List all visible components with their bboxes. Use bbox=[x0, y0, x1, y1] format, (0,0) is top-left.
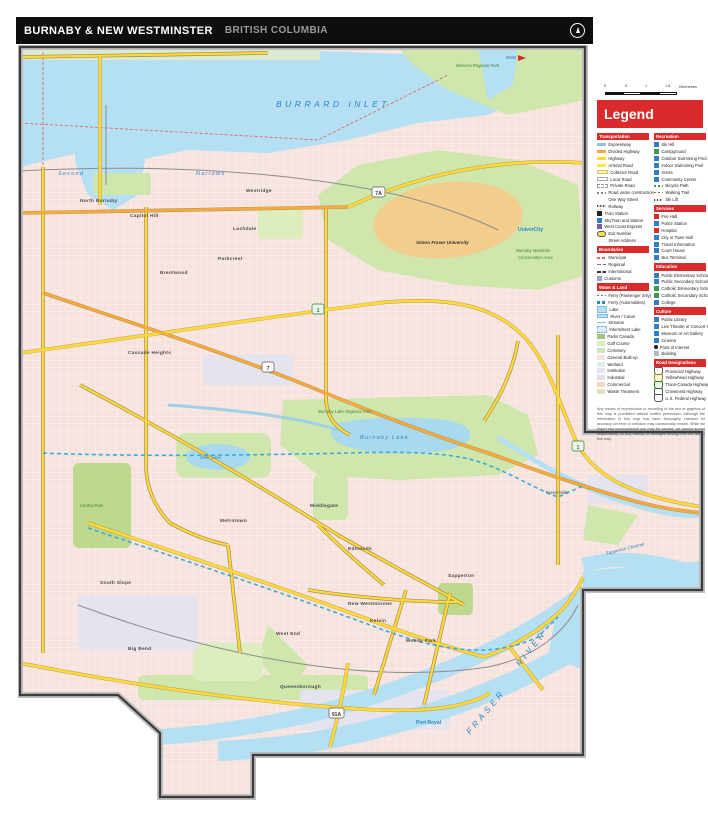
road-under-construction-swatch bbox=[597, 192, 606, 194]
legend-item: Live Theatre or Concert Hall bbox=[654, 323, 706, 330]
water-label: BURRARD INLET bbox=[276, 99, 390, 109]
park-label: Conservation Area bbox=[518, 255, 553, 260]
bicycle-path-swatch bbox=[654, 185, 663, 187]
district-label: North Burnaby bbox=[80, 198, 118, 204]
poi-label: UniverCity bbox=[518, 227, 543, 233]
park-label: Central Park bbox=[80, 503, 104, 508]
expressway-swatch bbox=[597, 143, 606, 146]
page-title: BURNABY & NEW WESTMINSTER bbox=[24, 25, 213, 37]
legend-section-header: Recreation bbox=[654, 133, 706, 141]
legend-item: Private Road bbox=[597, 182, 649, 189]
one-way-arrow-icon bbox=[597, 197, 606, 202]
legend-section-header: Education bbox=[654, 263, 706, 271]
museum-icon bbox=[654, 331, 659, 336]
waste-treatment-swatch bbox=[597, 389, 605, 394]
legend-item: Community Centre bbox=[654, 176, 706, 183]
river-canal-swatch bbox=[597, 314, 608, 319]
legend-item: Golf Course bbox=[597, 340, 649, 347]
legend-item: Catholic Secondary School bbox=[654, 292, 706, 299]
legend-item: Arena bbox=[654, 169, 706, 176]
international-boundary-swatch bbox=[597, 271, 606, 273]
legend-section-header: Services bbox=[654, 205, 706, 213]
map-page: BURNABY & NEW WESTMINSTER BRITISH COLUMB… bbox=[0, 0, 708, 816]
exit-number-icon bbox=[597, 231, 606, 237]
public-secondary-school-icon bbox=[654, 279, 659, 284]
scale-tick: .5 bbox=[624, 84, 627, 88]
institution-swatch bbox=[597, 368, 605, 373]
general-built-up-swatch bbox=[597, 355, 605, 360]
commercial-swatch bbox=[597, 382, 605, 387]
legend-item: Arterial Road bbox=[597, 162, 649, 169]
west-coast-express-icon bbox=[597, 224, 602, 229]
legend-item: Bicycle Path bbox=[654, 182, 706, 189]
train-station-icon bbox=[597, 211, 602, 216]
ferry-automobile-swatch bbox=[597, 301, 606, 303]
legend-item: Expressway bbox=[597, 141, 649, 148]
local-road-swatch bbox=[597, 177, 608, 181]
arterial-road-swatch bbox=[597, 164, 606, 166]
copyright-disclaimer: Any means of reproduction or recording o… bbox=[597, 407, 705, 442]
catholic-elementary-school-icon bbox=[654, 286, 659, 291]
district-label: Parkcrest bbox=[218, 256, 243, 262]
legend-item: Wetland bbox=[597, 361, 649, 368]
legend-item: Customs bbox=[597, 275, 649, 282]
legend-item: Outdoor Swimming Pool bbox=[654, 155, 706, 162]
legend-item: Travel Information bbox=[654, 241, 706, 248]
golf-course-swatch bbox=[597, 341, 605, 346]
district-label: Lochdale bbox=[233, 226, 256, 232]
legend-item: International bbox=[597, 268, 649, 275]
legend-item: U.S. Federal Highway bbox=[654, 395, 706, 402]
city-hall-icon bbox=[654, 235, 659, 240]
district-label: Westridge bbox=[246, 188, 272, 194]
legend-item: College bbox=[654, 299, 706, 306]
legend-item: Railway bbox=[597, 203, 649, 210]
legend-item: Point of Interest bbox=[654, 344, 706, 351]
legend-panel: 0 .5 1 1.5 Kilometres Legend Transportat… bbox=[597, 84, 707, 442]
regional-boundary-swatch bbox=[597, 264, 606, 265]
district-label: West End bbox=[276, 631, 300, 637]
legend-item: General Built-up bbox=[597, 354, 649, 361]
legend-item: Hospital bbox=[654, 227, 706, 234]
legend-item: Highway bbox=[597, 155, 649, 162]
scale-unit: Kilometres bbox=[679, 85, 697, 89]
legend-item: Museum or Art Gallery bbox=[654, 330, 706, 337]
district-label: Brentwood bbox=[160, 270, 188, 276]
legend-item: Local Road bbox=[597, 176, 649, 183]
legend-item: Parks Canada bbox=[597, 333, 649, 340]
catholic-secondary-school-icon bbox=[654, 293, 659, 298]
district-label: Metrotown bbox=[220, 518, 247, 524]
title-bar: BURNABY & NEW WESTMINSTER BRITISH COLUMB… bbox=[16, 17, 593, 44]
travel-information-icon bbox=[654, 242, 659, 247]
scale-tick: 1.5 bbox=[665, 84, 670, 88]
point-of-interest-icon bbox=[654, 345, 658, 349]
ski-hill-icon bbox=[654, 142, 659, 147]
water-label: Burnaby Lake bbox=[360, 435, 409, 441]
building-swatch bbox=[654, 351, 659, 356]
legend-item: Commercial bbox=[597, 381, 649, 388]
park-label: Burnaby Mountain bbox=[516, 248, 551, 253]
legend-item: West Coast Express bbox=[597, 224, 649, 231]
fire-hall-icon bbox=[654, 214, 659, 219]
legend-column-left: Transportation Expressway Divided Highwa… bbox=[597, 131, 649, 402]
legend-item: Public Elementary School bbox=[654, 272, 706, 279]
page-subtitle: BRITISH COLUMBIA bbox=[225, 25, 328, 36]
legend-item: Institution bbox=[597, 367, 649, 374]
district-label: Edmonds bbox=[348, 546, 372, 552]
parks-canada-swatch bbox=[597, 334, 605, 339]
legend-item: Campground bbox=[654, 148, 706, 155]
legend-item: Bus Terminal bbox=[654, 254, 706, 261]
legend-item: Walking Trail bbox=[654, 189, 706, 196]
highway-shield: 1 bbox=[577, 445, 580, 451]
legend-section-header: Transportation bbox=[597, 133, 649, 141]
legend-item: Lake bbox=[597, 306, 649, 313]
legend-item: Police Station bbox=[654, 220, 706, 227]
intermittent-lake-swatch bbox=[597, 326, 607, 333]
legend-item: River / Canal bbox=[597, 313, 649, 320]
district-label: South Slope bbox=[100, 580, 131, 586]
district-label: Queensborough bbox=[280, 684, 321, 690]
poi-label: Simon Fraser University bbox=[416, 240, 469, 245]
park-label: Belcarra Regional Park bbox=[456, 63, 500, 68]
public-library-icon bbox=[654, 317, 659, 322]
legend-item: Cemetery bbox=[597, 347, 649, 354]
continuation-label bbox=[506, 56, 516, 59]
private-road-swatch bbox=[597, 184, 608, 188]
industrial-swatch bbox=[597, 375, 605, 380]
hospital-icon bbox=[654, 228, 659, 233]
legend-section-header: Culture bbox=[654, 307, 706, 315]
legend-item: Road under construction bbox=[597, 189, 649, 196]
walking-trail-swatch bbox=[654, 192, 663, 193]
skytrain-station-icon bbox=[597, 218, 602, 223]
wetland-swatch bbox=[597, 362, 605, 367]
cemetery-swatch bbox=[597, 348, 605, 353]
district-label: Capitol Hill bbox=[130, 213, 159, 219]
lake-swatch bbox=[597, 306, 607, 313]
legend-item: Collector Road bbox=[597, 169, 649, 176]
ski-lift-swatch bbox=[654, 199, 663, 201]
legend-item: Intermittent Lake bbox=[597, 326, 649, 333]
legend-item: Court House bbox=[654, 248, 706, 255]
legend-item: Ski Hill bbox=[654, 141, 706, 148]
district-label: New Westminster bbox=[348, 601, 392, 607]
divided-highway-swatch bbox=[597, 150, 606, 153]
legend-item: One Way Street bbox=[597, 196, 649, 203]
ferry-passenger-swatch bbox=[597, 295, 606, 296]
district-label: Cascade Heights bbox=[128, 350, 171, 356]
area-label: Fraser Mills bbox=[546, 490, 568, 495]
railway-swatch bbox=[597, 205, 606, 207]
us-federal-highway-shield-icon bbox=[654, 394, 663, 402]
legend-column-right: Recreation Ski Hill Campground Outdoor S… bbox=[654, 131, 706, 402]
legend-item: Building bbox=[654, 350, 706, 357]
legend-item: Street Address bbox=[597, 237, 649, 244]
scale-tick: 0 bbox=[604, 84, 606, 88]
legend-item: Waste Treatment bbox=[597, 388, 649, 395]
highway-shield: 7A bbox=[375, 191, 382, 197]
district-label: Kelvin bbox=[370, 618, 386, 624]
public-elementary-school-icon bbox=[654, 273, 659, 278]
legend-item: Indoor Swimming Pool bbox=[654, 162, 706, 169]
street-address-icon bbox=[597, 238, 606, 243]
legend-item: Cinema bbox=[654, 337, 706, 344]
legend-item: Ferry (Passenger only) bbox=[597, 292, 649, 299]
district-label: Moody Park bbox=[406, 638, 436, 644]
outdoor-pool-icon bbox=[654, 156, 659, 161]
water-label: Deer Lake bbox=[200, 455, 222, 460]
legend-title: Legend bbox=[597, 100, 703, 128]
scale-tick: 1 bbox=[645, 84, 647, 88]
legend-item: Catholic Elementary School bbox=[654, 285, 706, 292]
legend-section-header: Boundaries bbox=[597, 246, 649, 254]
legend-item: Fire Hall bbox=[654, 213, 706, 220]
district-label: Sapperton bbox=[448, 573, 474, 579]
legend-item: Regional bbox=[597, 261, 649, 268]
park-label: Burnaby Lake Regional Park bbox=[318, 409, 372, 414]
bus-terminal-icon bbox=[654, 255, 659, 260]
arena-icon bbox=[654, 170, 659, 175]
college-icon bbox=[654, 300, 659, 305]
cinema-icon bbox=[654, 338, 659, 343]
highway-swatch bbox=[597, 157, 606, 160]
water-label: Narrows bbox=[196, 171, 225, 177]
legend-section-header: Road Designations bbox=[654, 359, 706, 367]
highway-shield: 1 bbox=[317, 308, 320, 314]
legend-item: Industrial bbox=[597, 374, 649, 381]
highway-shield: 91A bbox=[332, 712, 342, 718]
north-arrow-icon bbox=[570, 23, 585, 38]
campground-icon bbox=[654, 149, 659, 154]
water-label: Second bbox=[58, 171, 84, 177]
legend-item: City or Town Hall bbox=[654, 234, 706, 241]
legend-item: Divided Highway bbox=[597, 148, 649, 155]
legend-item: Public Secondary School bbox=[654, 278, 706, 285]
legend-item: Public Library bbox=[654, 316, 706, 323]
highway-shield: 7 bbox=[267, 366, 270, 372]
community-centre-icon bbox=[654, 177, 659, 182]
legend-item: Ski Lift bbox=[654, 196, 706, 203]
legend-section-header: Water & Land bbox=[597, 283, 649, 291]
court-house-icon bbox=[654, 248, 659, 253]
legend-item: Train Station bbox=[597, 210, 649, 217]
district-label: Middlegate bbox=[310, 503, 338, 509]
scale-bar: 0 .5 1 1.5 Kilometres bbox=[597, 84, 707, 97]
streams-swatch bbox=[597, 322, 606, 323]
district-label: Port Royal bbox=[416, 720, 442, 726]
theatre-icon bbox=[654, 324, 659, 329]
legend-item: Municipal bbox=[597, 254, 649, 261]
district-label: Big Bend bbox=[128, 646, 151, 652]
municipal-boundary-swatch bbox=[597, 257, 606, 258]
legend-item: SkyTrain and Station bbox=[597, 217, 649, 224]
customs-icon bbox=[597, 276, 602, 281]
indoor-pool-icon bbox=[654, 163, 659, 168]
collector-road-swatch bbox=[597, 170, 608, 174]
legend-item: Exit Number bbox=[597, 230, 649, 237]
police-station-icon bbox=[654, 221, 659, 226]
